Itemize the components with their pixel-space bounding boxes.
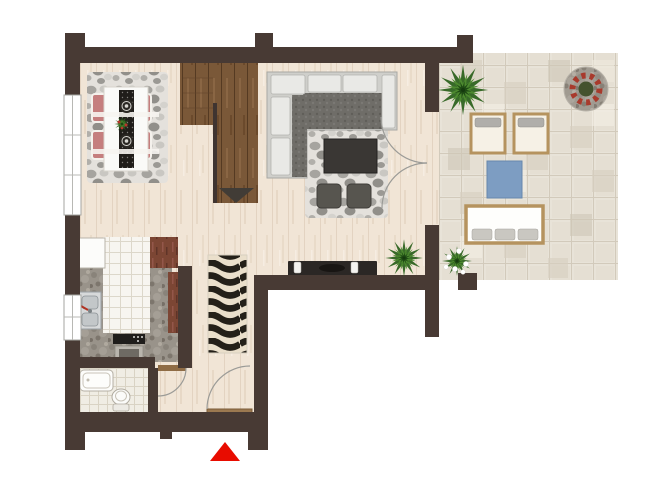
sofa-cushion <box>271 75 305 94</box>
kitchen-cabinet-right <box>168 272 178 333</box>
bench-cushion <box>518 229 538 240</box>
mosaic-table <box>564 67 608 111</box>
entrance-marker <box>210 442 240 461</box>
candle-icon <box>351 262 358 273</box>
bathroom <box>80 368 148 412</box>
sofa-cushion <box>271 97 290 135</box>
wall-bath-east <box>148 368 158 412</box>
wall-bath-north <box>65 357 155 368</box>
wall-living-south <box>254 275 427 290</box>
wall-south <box>65 412 268 432</box>
decor-bowl <box>319 264 345 272</box>
kitchen-tile-floor <box>103 237 150 335</box>
wall-stub <box>65 33 85 47</box>
coffee-table <box>324 139 377 173</box>
sun-lounger <box>471 114 505 153</box>
ottoman <box>347 184 371 208</box>
wall-kitchen-hall <box>178 266 192 368</box>
wall-stub <box>457 35 473 63</box>
candle-icon <box>294 262 301 273</box>
plate <box>120 134 134 148</box>
plate <box>120 99 134 113</box>
wall-stub <box>160 432 172 439</box>
window <box>64 295 81 340</box>
sofa-seat <box>303 93 382 129</box>
wall-entry-east <box>254 290 268 412</box>
wall-east-lower <box>425 225 439 337</box>
bench-cushion <box>472 229 492 240</box>
blue-mat <box>487 161 522 198</box>
sofa-cushion <box>308 75 341 92</box>
faucet-icon <box>88 309 92 313</box>
sofa-cushion <box>271 138 290 175</box>
kitchen-cabinet-top <box>150 237 178 268</box>
bench-cushion <box>495 229 515 240</box>
wall-stub <box>255 33 273 47</box>
wall-stub <box>458 273 477 290</box>
wall-stub <box>65 432 85 450</box>
floor-plan-canvas <box>0 0 650 480</box>
sun-lounger <box>514 114 548 153</box>
floor-plan <box>0 0 650 480</box>
sofa-armrest <box>382 75 395 128</box>
kitchen-sink <box>79 292 101 329</box>
garden-bench <box>466 206 543 243</box>
window <box>64 95 81 215</box>
stove <box>113 334 145 361</box>
bathtub <box>80 370 113 391</box>
wall-north <box>65 47 473 63</box>
dining-set <box>87 72 168 183</box>
wall-stub <box>248 432 268 450</box>
toilet <box>112 389 130 411</box>
kitchen <box>77 237 178 362</box>
lounger-pillow <box>475 118 501 127</box>
chair-armrest-bar <box>93 149 159 154</box>
lounger-pillow <box>518 118 544 127</box>
terrace-door-threshold <box>425 112 439 225</box>
ottoman <box>317 184 341 208</box>
sofa-seat-chaise <box>292 95 307 177</box>
sofa-cushion <box>343 75 377 92</box>
stair-stringer <box>213 103 217 203</box>
hallway-wave-rug <box>208 255 247 353</box>
wall-east-upper <box>425 63 439 112</box>
fridge <box>77 238 105 268</box>
